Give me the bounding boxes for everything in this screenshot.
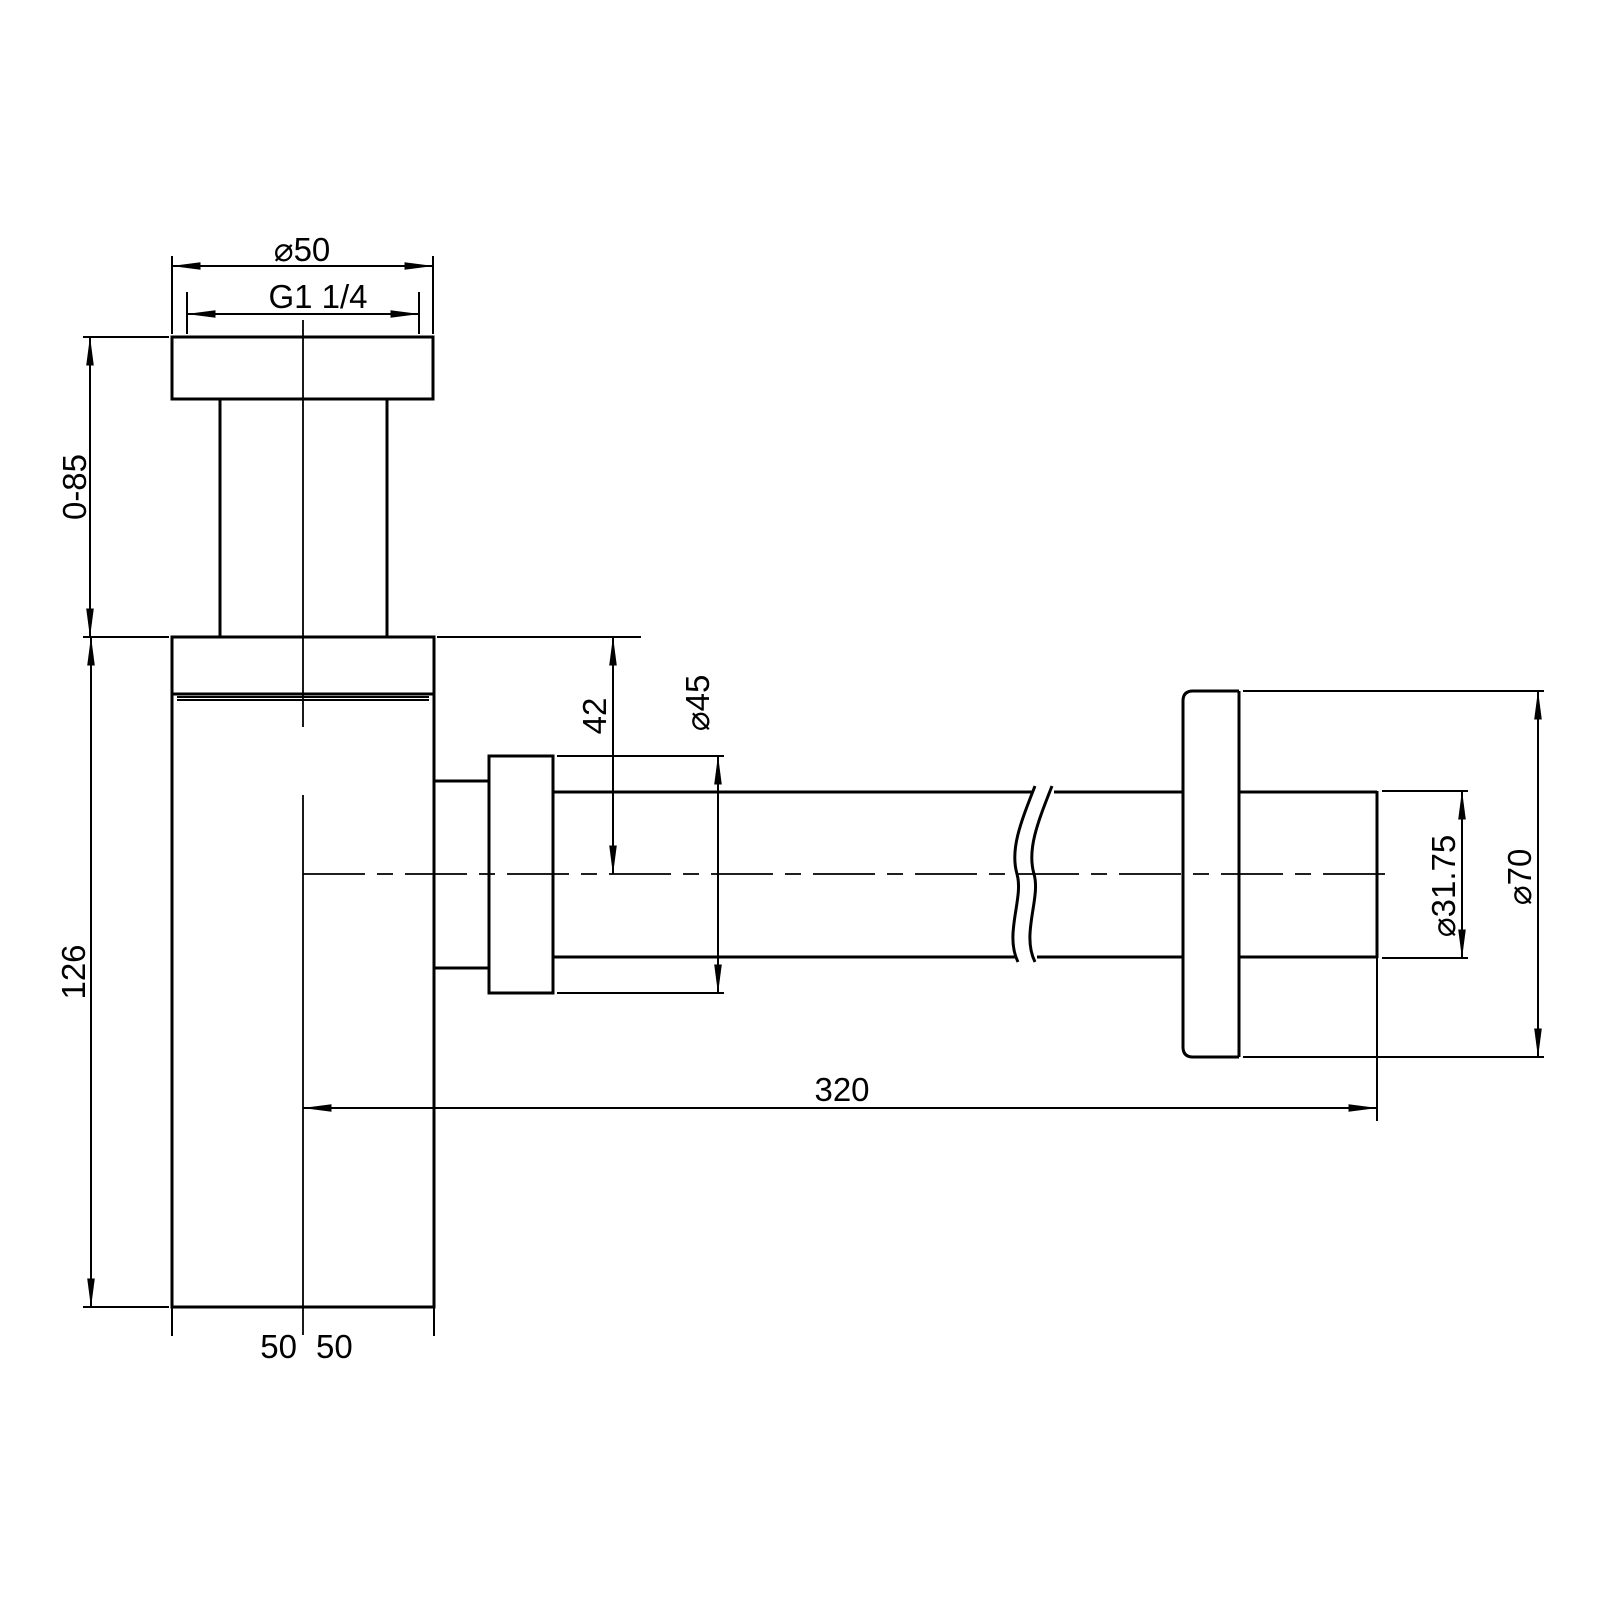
drawing-sheet: ⌀50 G1 1/4 0-85 126 42 ⌀45 ⌀31.75 ⌀70 32… (0, 0, 1600, 1600)
dim-label-thread-size: G1 1/4 (268, 278, 367, 315)
dim-label-body-height: 126 (55, 944, 92, 999)
centerlines (303, 320, 1397, 1335)
dimension-lines (90, 266, 1538, 1307)
bottle-trap-technical-drawing: ⌀50 G1 1/4 0-85 126 42 ⌀45 ⌀31.75 ⌀70 32… (0, 0, 1600, 1600)
dim-label-outlet-drop: 42 (576, 698, 613, 735)
dim-label-horizontal-reach: 320 (814, 1071, 869, 1108)
dim-label-wall-flange-diameter: ⌀70 (1501, 849, 1538, 906)
dim-label-base-offset-right: 50 (316, 1328, 353, 1365)
dimension-labels: ⌀50 G1 1/4 0-85 126 42 ⌀45 ⌀31.75 ⌀70 32… (55, 231, 1538, 1365)
dim-label-base-offset-left: 50 (260, 1328, 297, 1365)
trap-outline (172, 337, 1377, 1307)
dim-label-wall-pipe-diameter: ⌀31.75 (1425, 835, 1462, 937)
dim-label-outlet-nut-diameter: ⌀45 (679, 675, 716, 732)
dim-label-tail-pipe-height: 0-85 (56, 454, 93, 520)
dim-label-top-flange-diameter: ⌀50 (274, 231, 331, 268)
